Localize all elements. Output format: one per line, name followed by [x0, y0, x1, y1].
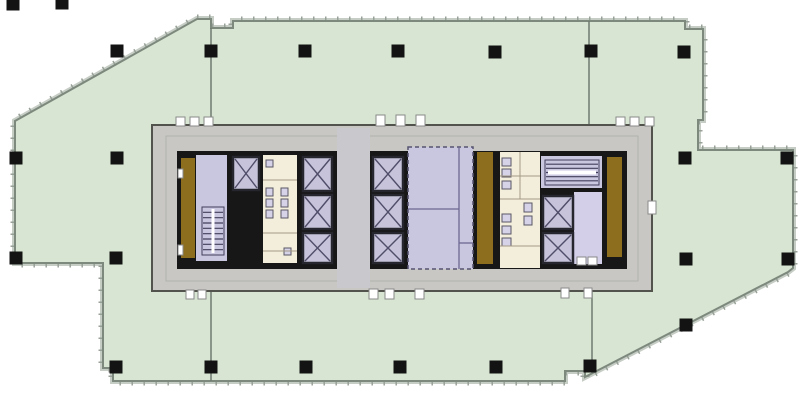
door-notch [630, 117, 639, 126]
floor-plan-drawing [0, 0, 800, 400]
door-notch [204, 117, 213, 126]
toilet-fixture [281, 210, 288, 218]
door-notch [178, 245, 183, 255]
building-column [584, 360, 597, 373]
toilet-fixture [266, 188, 273, 196]
building-column [490, 361, 503, 374]
door-notch [369, 289, 378, 299]
building-column [300, 361, 313, 374]
stair-rail [548, 171, 596, 175]
toilet-fixture [502, 214, 511, 222]
building-column [110, 361, 123, 374]
building-column [7, 0, 20, 11]
toilet-fixture [266, 160, 273, 167]
toilet-fixture [266, 199, 273, 207]
floor-plan-page [0, 0, 800, 400]
building-column [110, 252, 123, 265]
door-notch [178, 169, 183, 178]
door-notch [588, 257, 597, 265]
building-column [10, 152, 23, 165]
restroom-left [263, 155, 297, 263]
building-column [679, 152, 692, 165]
door-notch [648, 201, 656, 214]
toilet-fixture [524, 216, 532, 225]
building-column [205, 45, 218, 58]
toilet-fixture [266, 210, 273, 218]
building-column [678, 46, 691, 59]
door-notch [190, 117, 199, 126]
toilet-fixture [281, 188, 288, 196]
door-notch [645, 117, 654, 126]
building-column [205, 361, 218, 374]
door-notch [561, 288, 569, 298]
gold-strip-mid [477, 152, 493, 264]
building-column [585, 45, 598, 58]
building-column [680, 253, 693, 266]
machine-room [408, 147, 473, 269]
building-column [392, 45, 405, 58]
door-notch [396, 115, 405, 126]
building-column [394, 361, 407, 374]
building-column [781, 152, 794, 165]
building-column [111, 45, 124, 58]
toilet-fixture [502, 226, 511, 234]
gold-strip-right [607, 157, 622, 257]
toilet-fixture [502, 238, 511, 246]
building-column [56, 0, 69, 10]
door-notch [198, 290, 206, 299]
building-column [299, 45, 312, 58]
building-column [10, 252, 23, 265]
door-notch [584, 288, 592, 298]
door-notch [616, 117, 625, 126]
door-notch [415, 289, 424, 299]
door-notch [176, 117, 185, 126]
toilet-fixture [281, 199, 288, 207]
building-column [111, 152, 124, 165]
building-column [489, 46, 502, 59]
door-notch [577, 257, 586, 265]
toilet-fixture [502, 158, 511, 166]
door-notch [376, 115, 385, 126]
stair-rail [212, 209, 215, 253]
door-notch [416, 115, 425, 126]
building-column [680, 319, 693, 332]
toilet-fixture [502, 181, 511, 189]
elevator-lobby-center [337, 128, 370, 288]
elevator-lobby-right [574, 192, 602, 264]
door-notch [186, 290, 194, 299]
toilet-fixture [524, 203, 532, 212]
building-column [782, 253, 795, 266]
door-notch [385, 289, 394, 299]
